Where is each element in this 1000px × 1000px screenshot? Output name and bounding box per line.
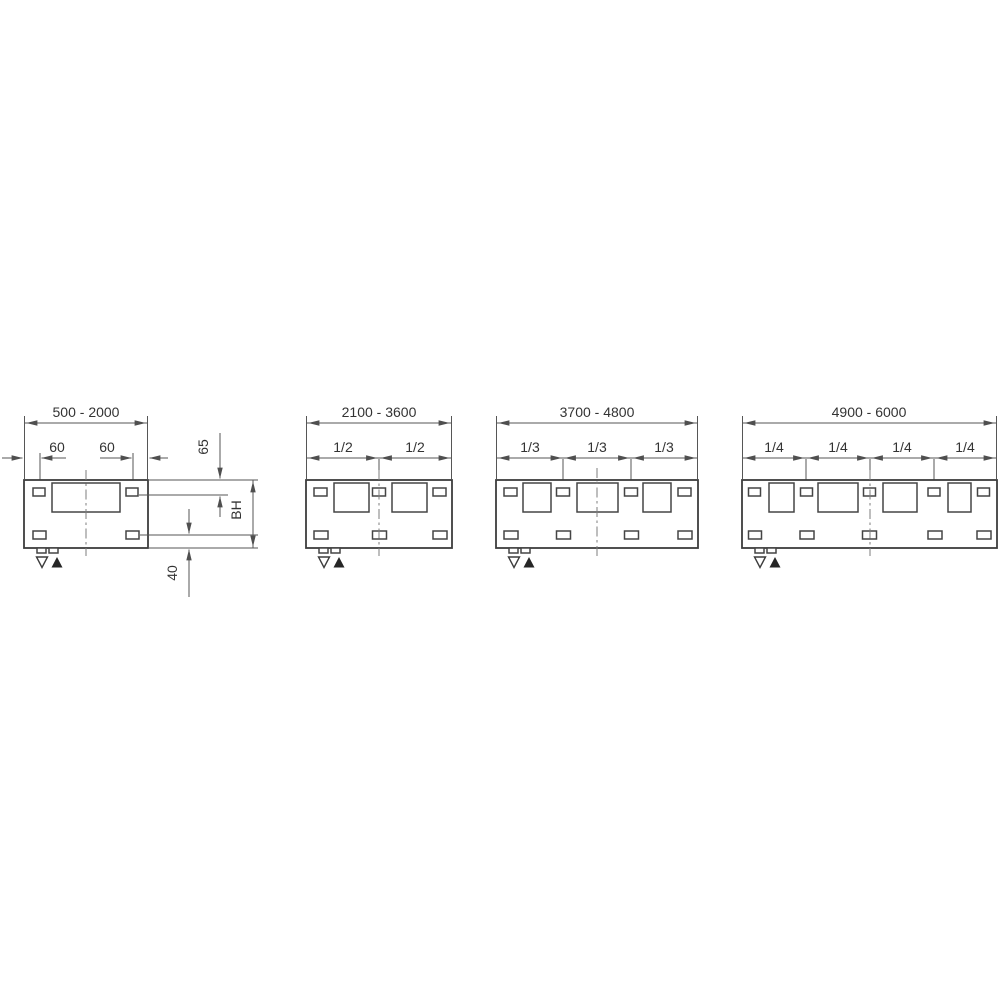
mounting-slot — [625, 531, 639, 539]
level-min-triangle-icon — [319, 557, 330, 568]
fraction-label: 1/4 — [764, 439, 784, 455]
range-label: 500 - 2000 — [53, 404, 120, 420]
fraction-label: 1/3 — [654, 439, 674, 455]
window-cutout — [818, 483, 858, 512]
foot-notch — [37, 548, 46, 553]
fraction-label: 1/3 — [587, 439, 607, 455]
window-cutout — [769, 483, 794, 512]
body-height-label: BH — [228, 500, 244, 519]
window-cutout — [883, 483, 917, 512]
level-max-triangle-icon — [524, 557, 535, 568]
panel-width-range-2: 2100 - 3600 1/2 1/2 — [306, 404, 452, 568]
fraction-label: 1/4 — [955, 439, 975, 455]
fraction-label: 1/4 — [892, 439, 912, 455]
fraction-label: 1/3 — [520, 439, 540, 455]
mounting-slot — [978, 488, 990, 496]
mounting-slot — [33, 531, 46, 539]
mounting-slot — [504, 488, 517, 496]
foot-notch — [49, 548, 58, 553]
panel-width-range-1: 500 - 2000 60 60 65 BH 40 — [2, 404, 258, 597]
level-max-triangle-icon — [52, 557, 63, 568]
mounting-slot — [801, 488, 813, 496]
mounting-slot — [314, 488, 327, 496]
offset-label: 60 — [49, 439, 65, 455]
mounting-slot — [749, 488, 761, 496]
window-cutout — [523, 483, 551, 512]
range-label: 3700 - 4800 — [560, 404, 635, 420]
extension-lines — [307, 416, 452, 479]
mounting-slot — [800, 531, 814, 539]
mounting-slot — [678, 488, 691, 496]
range-label: 4900 - 6000 — [832, 404, 907, 420]
foot-notch — [331, 548, 340, 553]
foot-notch — [509, 548, 518, 553]
mounting-slot — [557, 488, 570, 496]
foot-notch — [767, 548, 776, 553]
mounting-slot — [126, 488, 138, 496]
mounting-slot — [433, 531, 447, 539]
window-cutout — [948, 483, 971, 512]
mounting-slot — [928, 531, 942, 539]
mounting-slot — [977, 531, 991, 539]
level-min-triangle-icon — [509, 557, 520, 568]
panel-width-range-3: 3700 - 4800 1/3 1/3 1/3 — [496, 404, 698, 568]
level-max-triangle-icon — [770, 557, 781, 568]
technical-drawing-page: 500 - 2000 60 60 65 BH 40 2100 - 3600 1/… — [0, 0, 1000, 1000]
mounting-slot — [928, 488, 940, 496]
level-max-triangle-icon — [334, 557, 345, 568]
mounting-slot — [625, 488, 638, 496]
fraction-label: 1/2 — [333, 439, 353, 455]
mounting-slot — [433, 488, 446, 496]
level-min-triangle-icon — [37, 557, 48, 568]
window-cutout — [643, 483, 671, 512]
top-slot-offset-label: 65 — [195, 439, 211, 455]
mounting-slot — [504, 531, 518, 539]
window-cutout — [392, 483, 427, 512]
offset-label: 60 — [99, 439, 115, 455]
fraction-label: 1/4 — [828, 439, 848, 455]
mounting-slot — [314, 531, 328, 539]
range-label: 2100 - 3600 — [342, 404, 417, 420]
mounting-slot — [33, 488, 45, 496]
mounting-dimensions-drawing: 500 - 2000 60 60 65 BH 40 2100 - 3600 1/… — [0, 0, 1000, 1000]
foot-notch — [319, 548, 328, 553]
mounting-slot — [126, 531, 139, 539]
fraction-label: 1/2 — [405, 439, 425, 455]
foot-notch — [755, 548, 764, 553]
mounting-slot — [749, 531, 762, 539]
mounting-slot — [678, 531, 692, 539]
window-cutout — [334, 483, 369, 512]
level-min-triangle-icon — [755, 557, 766, 568]
mounting-slot — [557, 531, 571, 539]
foot-notch — [521, 548, 530, 553]
panel-width-range-4: 4900 - 6000 1/4 1/4 1/4 1/4 — [742, 404, 997, 568]
bottom-slot-offset-label: 40 — [164, 565, 180, 581]
